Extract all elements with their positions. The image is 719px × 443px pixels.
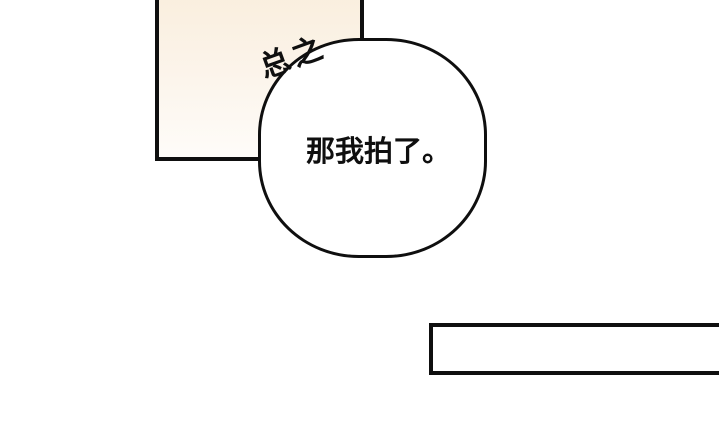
panel-bottom-right — [429, 323, 719, 375]
comic-page: 那我拍了。 总之 — [0, 0, 719, 443]
speech-bubble-text: 那我拍了。 — [306, 128, 451, 170]
